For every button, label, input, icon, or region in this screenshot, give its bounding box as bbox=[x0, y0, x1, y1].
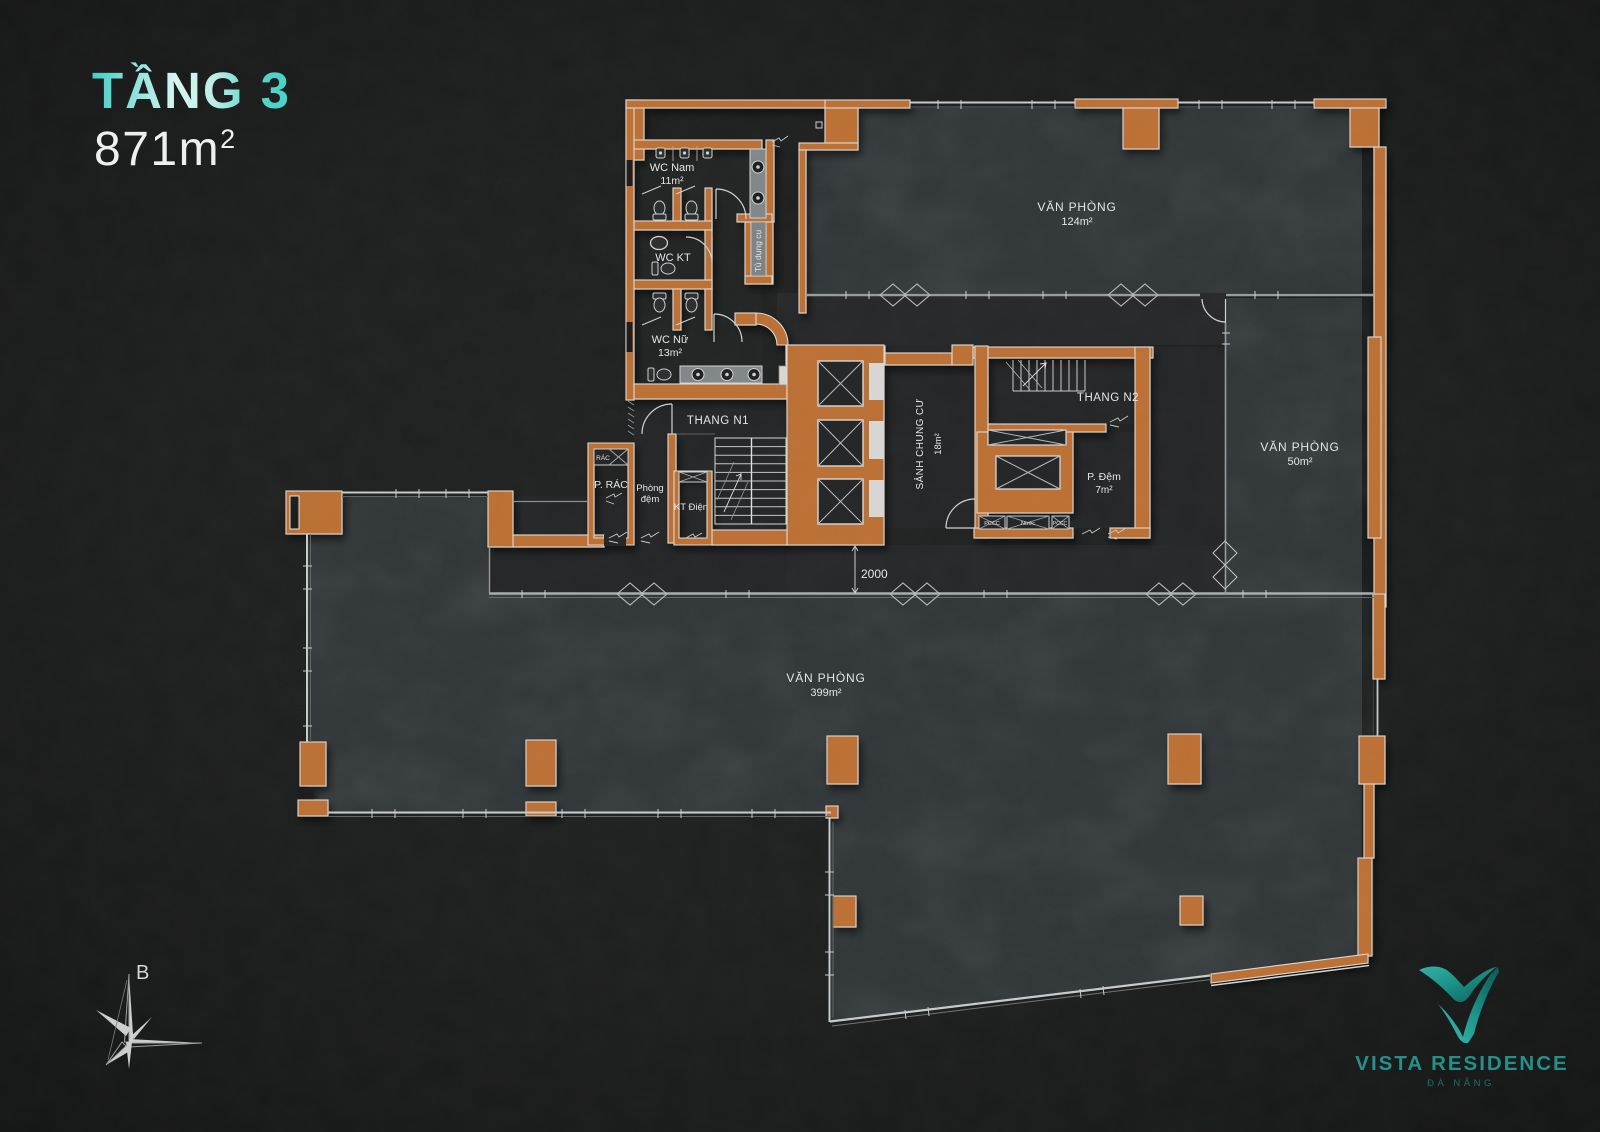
svg-text:399m²: 399m² bbox=[810, 687, 842, 699]
svg-text:2000: 2000 bbox=[861, 567, 888, 581]
svg-text:ĐÀ NẴNG: ĐÀ NẴNG bbox=[1427, 1077, 1495, 1089]
svg-text:VĂN PHÒNG: VĂN PHÒNG bbox=[1037, 199, 1116, 214]
svg-text:11m²: 11m² bbox=[660, 175, 684, 187]
svg-text:đệm: đệm bbox=[641, 494, 660, 505]
svg-text:50m²: 50m² bbox=[1287, 456, 1312, 468]
svg-text:Tủ dụng cụ: Tủ dụng cụ bbox=[753, 229, 763, 272]
svg-text:KT Điện: KT Điện bbox=[674, 502, 708, 513]
svg-text:Phòng: Phòng bbox=[636, 483, 663, 494]
svg-text:THANG N2: THANG N2 bbox=[1077, 392, 1139, 404]
svg-text:PCCC: PCCC bbox=[1053, 521, 1068, 527]
svg-text:VĂN PHÒNG: VĂN PHÒNG bbox=[1260, 439, 1339, 454]
svg-text:P. RÁC: P. RÁC bbox=[594, 478, 628, 491]
svg-text:B: B bbox=[136, 962, 149, 984]
svg-text:13m²: 13m² bbox=[658, 347, 682, 359]
svg-text:TẦNG 3: TẦNG 3 bbox=[92, 61, 291, 119]
svg-text:124m²: 124m² bbox=[1061, 216, 1093, 228]
svg-text:7m²: 7m² bbox=[1095, 485, 1113, 496]
svg-text:RÁC: RÁC bbox=[596, 453, 610, 462]
svg-text:PCCC: PCCC bbox=[984, 521, 1000, 527]
svg-text:871m2: 871m2 bbox=[94, 123, 237, 176]
svg-text:THANG N1: THANG N1 bbox=[687, 415, 749, 427]
svg-text:18m²: 18m² bbox=[933, 433, 944, 455]
svg-text:VĂN PHÒNG: VĂN PHÒNG bbox=[786, 670, 865, 685]
svg-text:P. Đệm: P. Đệm bbox=[1087, 471, 1121, 483]
svg-text:SẢNH CHUNG CƯ: SẢNH CHUNG CƯ bbox=[913, 398, 926, 489]
svg-text:VISTA RESIDENCE: VISTA RESIDENCE bbox=[1355, 1052, 1568, 1075]
svg-text:WC Nữ: WC Nữ bbox=[652, 334, 689, 346]
svg-text:Nước: Nước bbox=[1021, 521, 1035, 527]
svg-text:WC KT: WC KT bbox=[655, 252, 691, 264]
svg-text:WC Nam: WC Nam bbox=[650, 162, 695, 174]
